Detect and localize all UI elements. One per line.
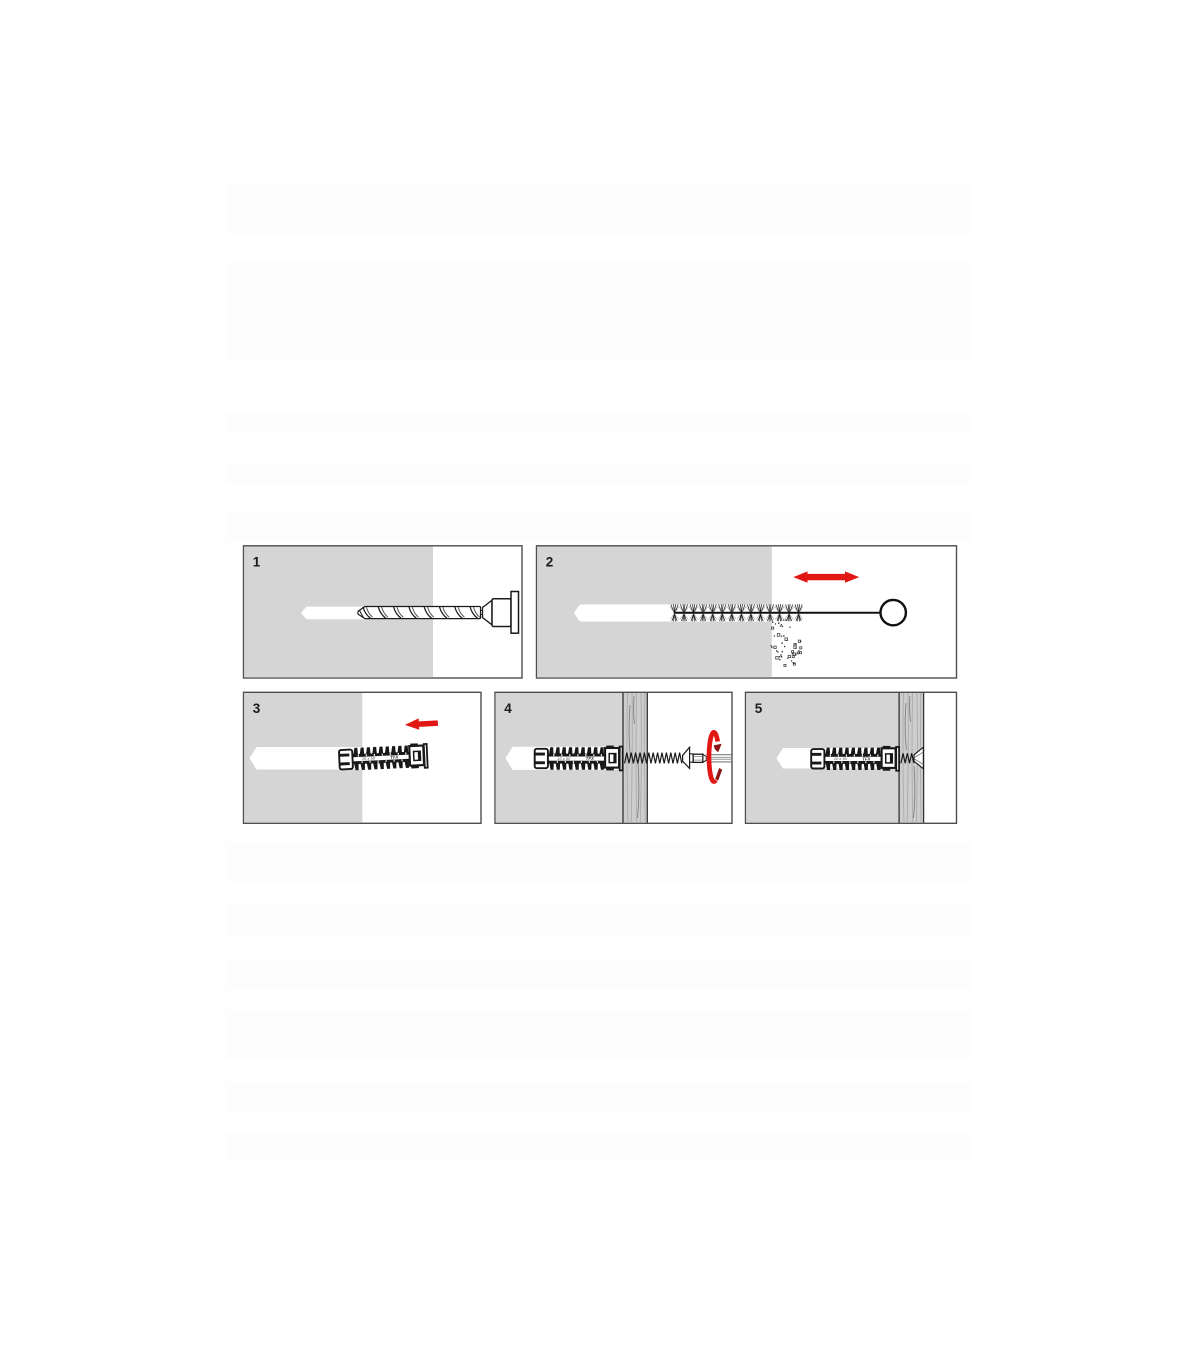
svg-text:1: 1 bbox=[253, 554, 261, 569]
svg-text:2: 2 bbox=[546, 554, 554, 569]
svg-text:3: 3 bbox=[253, 701, 261, 716]
svg-text:4: 4 bbox=[504, 701, 512, 716]
svg-text:5: 5 bbox=[755, 701, 763, 716]
